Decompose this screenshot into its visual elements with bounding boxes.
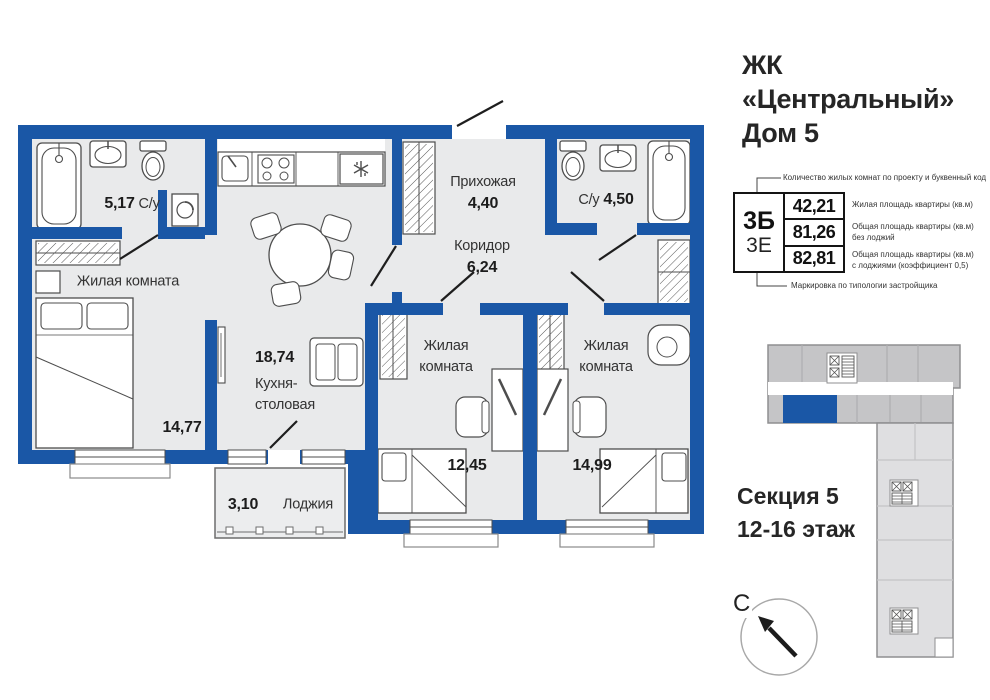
room-area-bedroom1: 12,45 <box>447 455 486 477</box>
project-title: ЖК «Центральный» Дом 5 <box>742 48 954 150</box>
section-line2: 12-16 этаж <box>737 516 855 543</box>
spec-value-total-area: 81,26 <box>785 220 843 246</box>
spec-note-2: Общая площадь квартиры (кв.м) без лоджий <box>852 222 974 243</box>
compass-north-label: С <box>731 590 752 618</box>
hall-wardrobe-icon <box>403 142 435 234</box>
room-label-loggia: Лоджия <box>283 495 333 516</box>
section-line1: Секция 5 <box>737 483 839 510</box>
bedroom1-chair-icon <box>456 397 489 437</box>
corridor-wardrobe-icon <box>658 240 690 304</box>
sink-2-icon <box>600 145 636 171</box>
room-label-bedroom1: Жилая комната <box>419 336 472 378</box>
room-label-bath1: 5,17 С/у <box>104 193 159 215</box>
bedroom2-chair-icon <box>573 397 606 437</box>
bedroom2-desk-icon <box>537 369 568 451</box>
kitchen-loggia-window <box>228 450 345 464</box>
living-window <box>70 450 170 478</box>
bedroom1-window <box>404 520 498 547</box>
double-bed-icon <box>36 298 133 448</box>
bedroom2-bed-icon <box>600 449 688 513</box>
spec-codes: 3Б 3Е <box>735 194 785 271</box>
kitchen-sink-icon <box>222 156 248 181</box>
spec-value-total-area-loggia: 82,81 <box>785 247 843 271</box>
kitchen-counter <box>218 152 385 186</box>
toilet-2-icon <box>560 135 586 180</box>
shelf-icon <box>36 241 120 265</box>
armchair-icon <box>648 325 690 365</box>
room-label-corridor: Коридор 6,24 <box>454 236 510 278</box>
north-arrow-icon <box>758 616 796 656</box>
keyplan-corridor <box>768 382 953 395</box>
washing-machine-icon <box>172 194 198 226</box>
bedroom2-window <box>560 520 654 547</box>
tv-icon <box>218 327 225 383</box>
apartment-plan <box>0 95 720 675</box>
keyplan-bottom-notch <box>935 638 953 657</box>
entrance-door-swing <box>457 101 503 126</box>
floorplan-page: 5,17 С/у Жилая комната 14,77 18,74 Кухня… <box>0 0 990 700</box>
keyplan-core-top <box>827 353 857 383</box>
fridge-icon <box>340 154 383 184</box>
room-label-living: Жилая комната <box>77 272 179 293</box>
room-area-loggia: 3,10 <box>228 494 258 516</box>
sofa-icon <box>310 338 363 386</box>
room-label-bedroom2: Жилая комната <box>579 336 632 378</box>
toilet-1-icon <box>140 135 166 180</box>
spec-value-living-area: 42,21 <box>785 194 843 220</box>
nightstand-icon <box>36 271 60 293</box>
room-area-living: 14,77 <box>162 417 201 439</box>
room-area-bedroom2: 14,99 <box>572 455 611 477</box>
bathtub-1-icon <box>37 143 81 229</box>
spec-bottom-note: Маркировка по типологии застройщика <box>791 281 937 292</box>
kitchen-window-strip <box>218 139 385 152</box>
spec-note-3: Общая площадь квартиры (кв.м) с лоджиями… <box>852 250 974 271</box>
bathtub-2-icon <box>648 141 690 225</box>
keyplan-core-mid <box>890 480 918 506</box>
room-label-hall: Прихожая 4,40 <box>450 172 516 214</box>
apartment-code-primary: 3Б <box>743 208 775 234</box>
bedroom1-wardrobe-icon <box>380 313 407 379</box>
spec-top-note: Количество жилых комнат по проекту и бук… <box>783 173 986 184</box>
room-label-kitchen: 18,74 Кухня- столовая <box>255 347 315 416</box>
room-label-bath2: С/у 4,50 <box>578 189 633 211</box>
spec-table: 3Б 3Е 42,21 81,26 82,81 <box>733 192 845 273</box>
keyplan-core-bottom <box>890 608 918 634</box>
apartment-code-secondary: 3Е <box>746 234 772 258</box>
spec-note-1: Жилая площадь квартиры (кв.м) <box>852 200 973 211</box>
stove-icon <box>258 155 294 183</box>
sink-1-icon <box>90 141 126 167</box>
bedroom1-desk-icon <box>492 369 523 451</box>
keyplan-unit-highlight <box>783 395 837 423</box>
